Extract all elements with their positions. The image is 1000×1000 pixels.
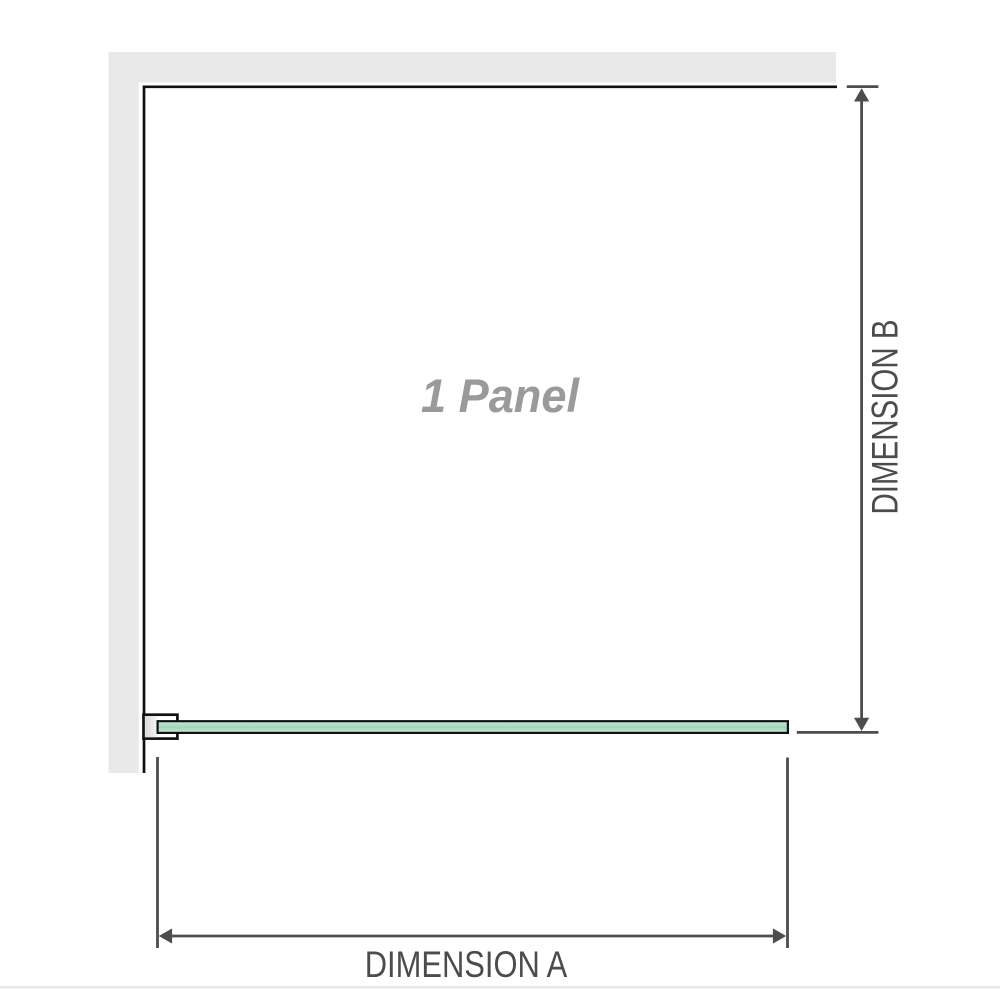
svg-text:DIMENSION A: DIMENSION A	[365, 943, 568, 985]
svg-text:1 Panel: 1 Panel	[421, 369, 580, 422]
svg-text:DIMENSION B: DIMENSION B	[864, 320, 906, 515]
